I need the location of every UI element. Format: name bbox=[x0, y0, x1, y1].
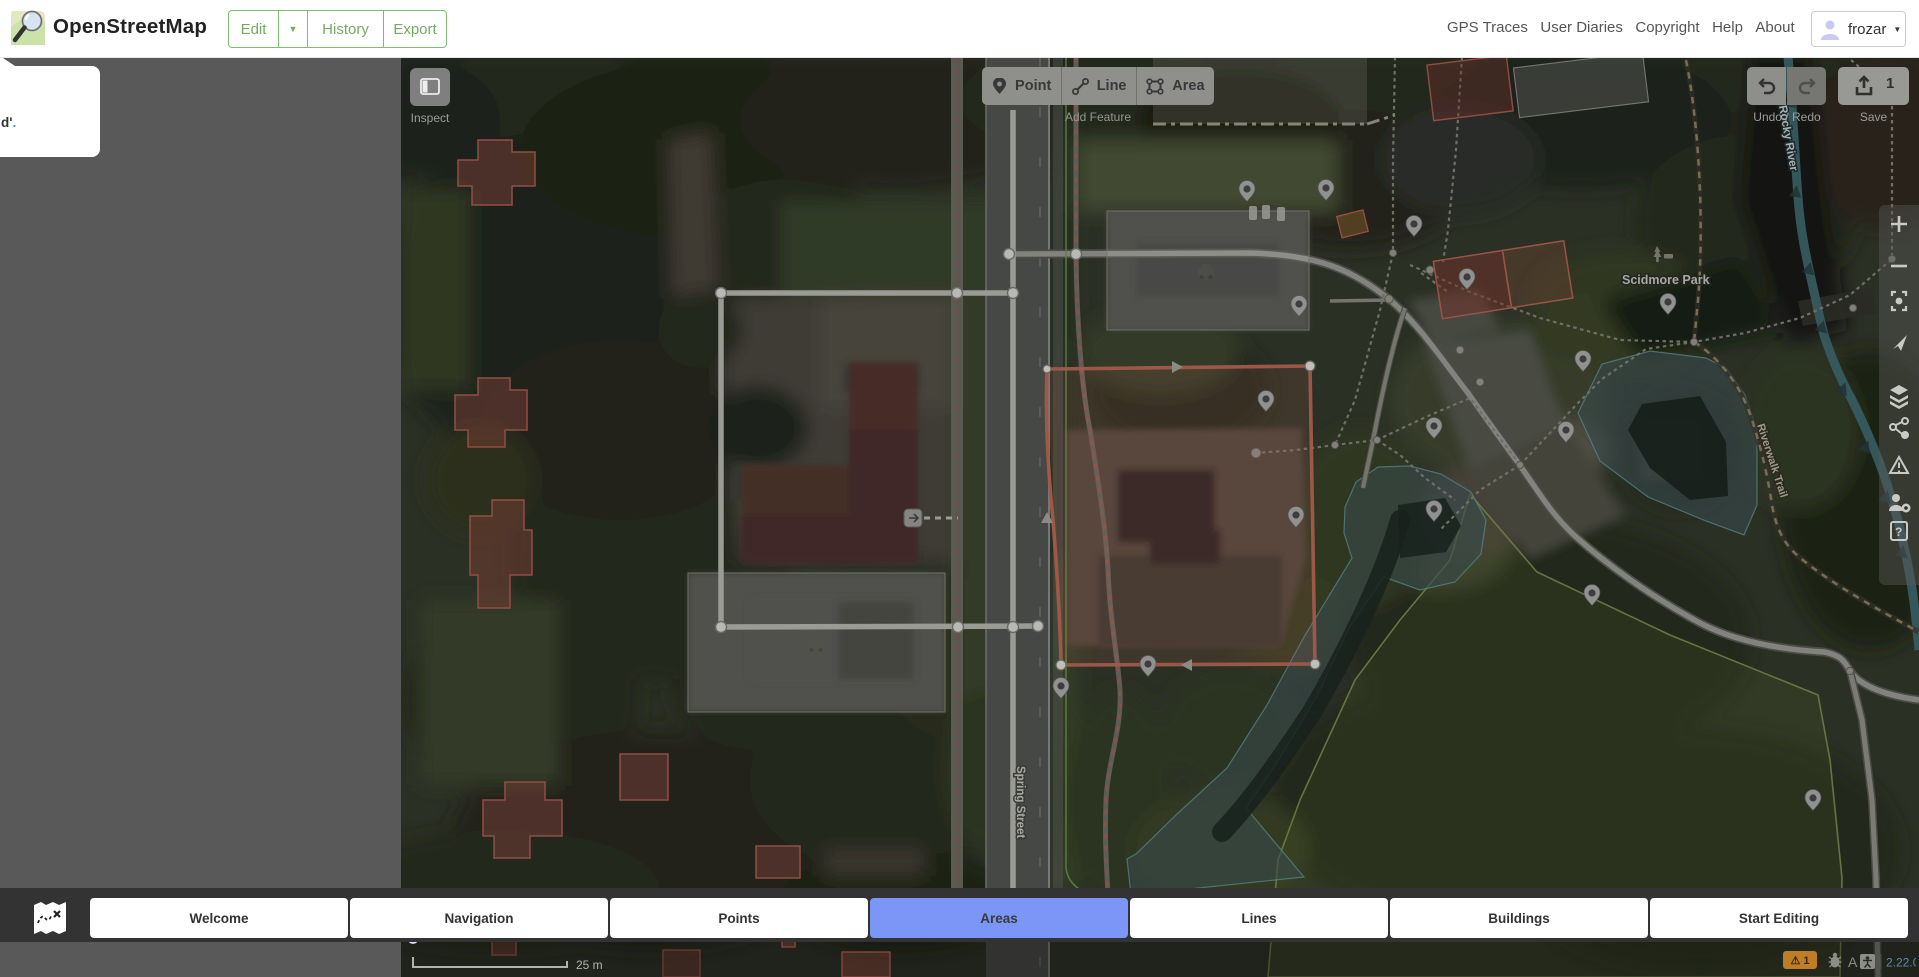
svg-text:2.22.0: 2.22.0 bbox=[1886, 956, 1916, 970]
svg-text:A: A bbox=[1848, 954, 1858, 970]
svg-text:Spring Street: Spring Street bbox=[1014, 766, 1026, 838]
svg-text:25 m: 25 m bbox=[576, 958, 603, 972]
svg-text:?: ? bbox=[1895, 525, 1902, 539]
svg-text:Scidmore Park: Scidmore Park bbox=[1622, 273, 1710, 287]
